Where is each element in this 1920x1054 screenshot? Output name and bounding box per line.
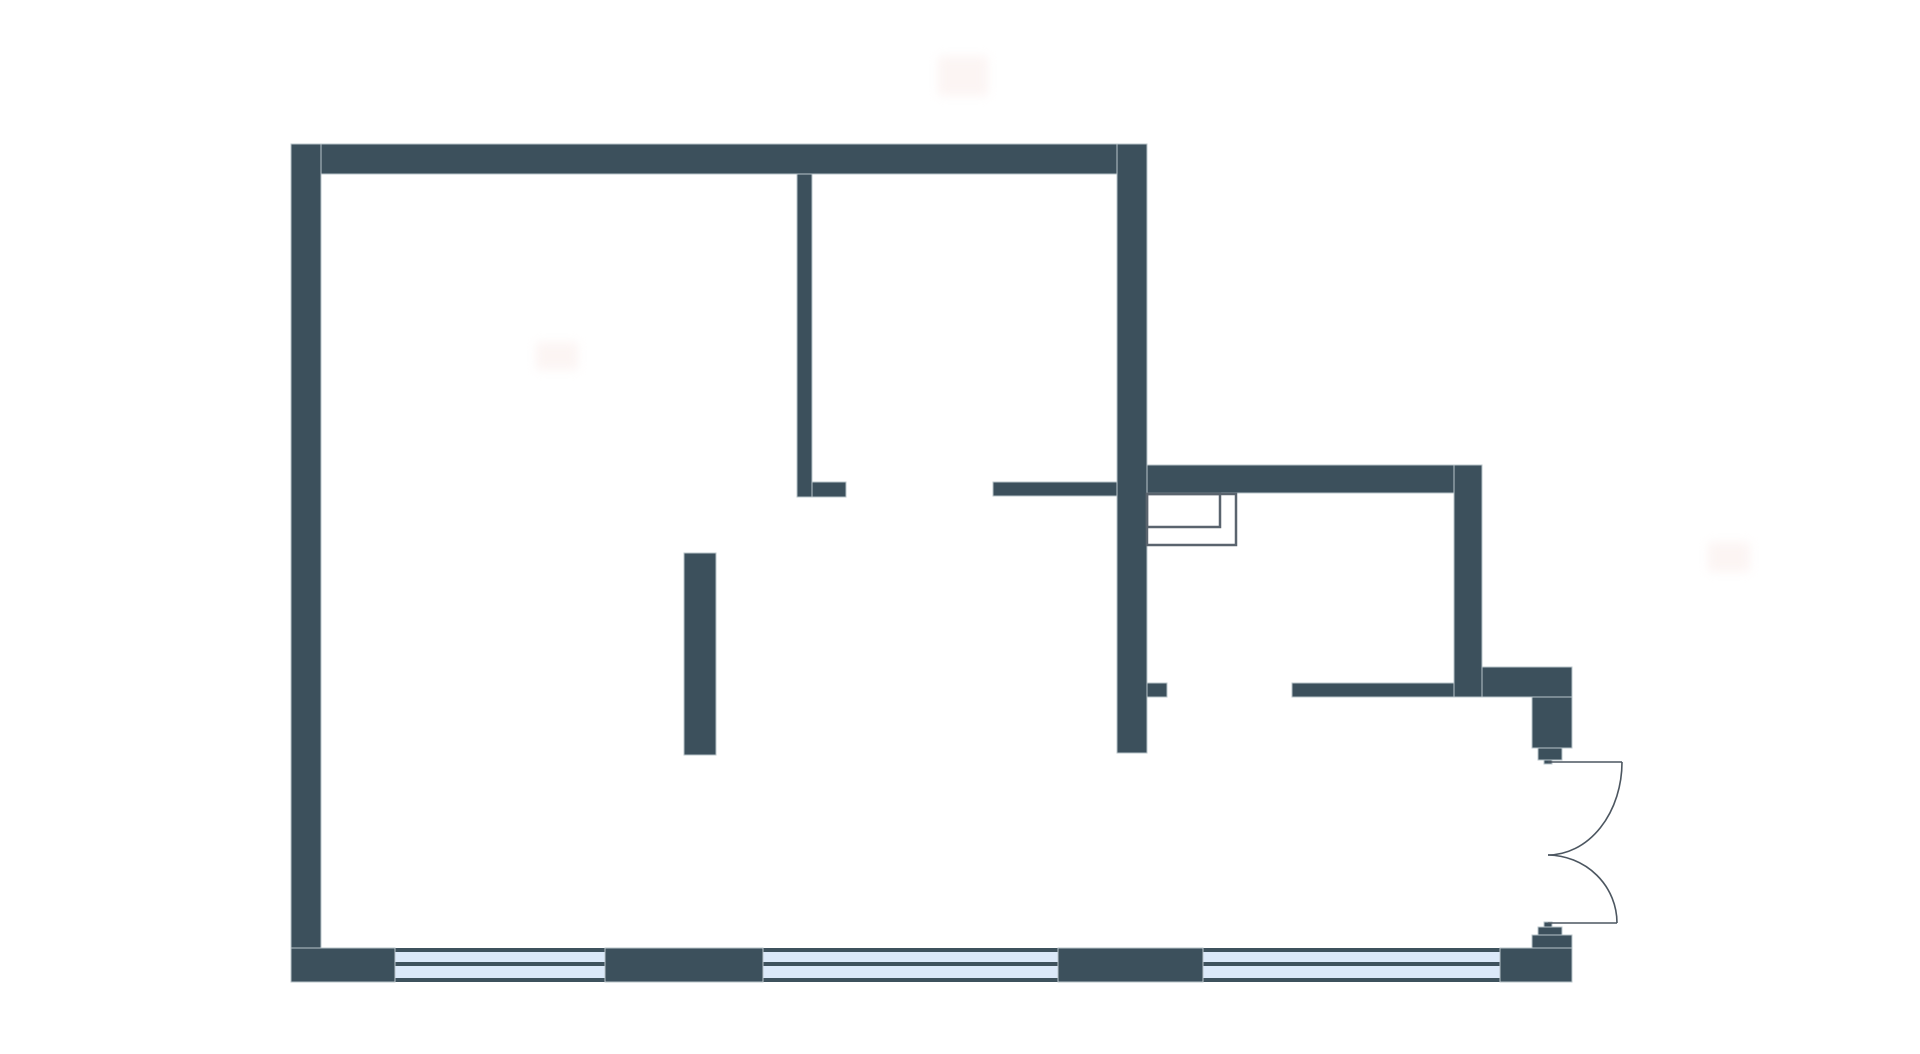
partition-island — [684, 553, 716, 755]
bottom-wall-segment-1 — [291, 948, 395, 982]
top-wall — [291, 144, 1147, 174]
window-line-top — [1203, 948, 1500, 952]
bottom-wall-segment-4 — [1500, 948, 1572, 982]
door-swing-bottom — [1548, 855, 1617, 923]
floor-plan-drawing — [0, 0, 1920, 1054]
window-line-middle — [1203, 962, 1500, 966]
smudge-2 — [536, 342, 578, 370]
right-wall-stub — [1147, 683, 1167, 697]
bottom-wall-segment-3 — [1058, 948, 1203, 982]
interior-wall-foot — [812, 482, 846, 497]
smudge-1 — [938, 56, 988, 96]
hall-wall — [1292, 683, 1454, 697]
door-jamb-bottom-step — [1538, 927, 1562, 935]
annex-right-wall — [1454, 465, 1482, 697]
left-wall — [291, 144, 321, 982]
bottom-wall-segment-2 — [605, 948, 763, 982]
window-line-bottom — [1203, 978, 1500, 982]
shaft-outline-outer — [1147, 494, 1236, 545]
right-wall — [1117, 144, 1147, 753]
door-jamb-top-block — [1532, 697, 1572, 748]
window-line-bottom — [395, 978, 605, 982]
window-line-middle — [395, 962, 605, 966]
annex-corner-band — [1482, 667, 1572, 697]
floor-plan-canvas — [0, 0, 1920, 1054]
shaft-outline-inner — [1147, 494, 1220, 527]
smudge-3 — [1708, 542, 1750, 572]
annex-top-wall — [1147, 465, 1482, 493]
interior-wall-stub — [993, 482, 1117, 496]
door-swing-top — [1548, 762, 1622, 855]
interior-wall-vertical — [797, 174, 812, 497]
window-line-bottom — [763, 978, 1058, 982]
window-line-top — [395, 948, 605, 952]
window-line-top — [763, 948, 1058, 952]
door-jamb-top-step — [1538, 748, 1562, 760]
window-line-middle — [763, 962, 1058, 966]
